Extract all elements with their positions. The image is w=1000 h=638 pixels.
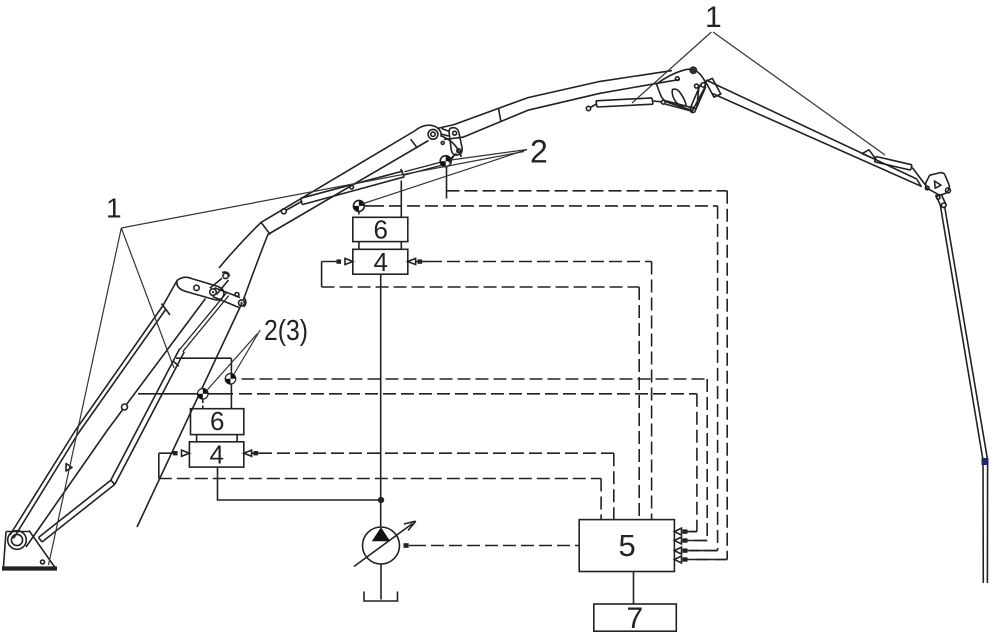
- svg-text:1: 1: [705, 1, 722, 34]
- svg-text:1: 1: [106, 193, 122, 224]
- svg-text:6: 6: [210, 406, 224, 436]
- svg-text:7: 7: [627, 602, 644, 635]
- svg-text:4: 4: [210, 440, 224, 470]
- svg-text:2(3): 2(3): [264, 315, 308, 347]
- svg-text:5: 5: [619, 528, 636, 563]
- svg-text:2: 2: [530, 134, 548, 170]
- svg-text:4: 4: [374, 247, 388, 277]
- svg-text:6: 6: [374, 215, 388, 245]
